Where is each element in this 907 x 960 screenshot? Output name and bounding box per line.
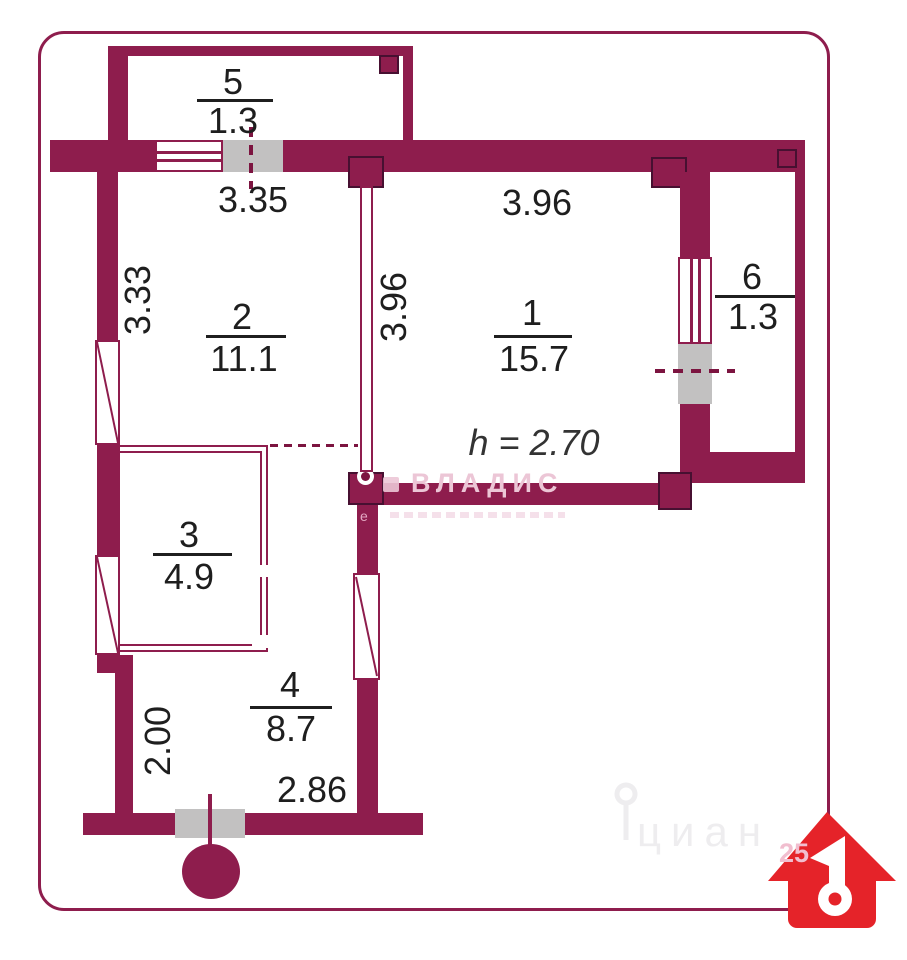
room2-number: 2 [232, 299, 252, 335]
cian-number-watermark: 25 [779, 838, 809, 869]
hall-wall-lower [357, 680, 378, 814]
balcony6-door [678, 344, 712, 404]
cian-watermark: циан [637, 808, 771, 856]
key-ring-hole [829, 893, 842, 906]
dim-partition: 3.96 [376, 272, 412, 342]
room-partition [360, 186, 373, 472]
window-line [157, 159, 221, 162]
hall-door [353, 573, 380, 680]
window-line [157, 151, 221, 154]
closet-opening-1 [252, 565, 270, 577]
room1-area: 15.7 [499, 341, 569, 377]
balcony6-window [678, 257, 712, 344]
left-wall-middle [97, 445, 118, 555]
dim-hall-width: 2.86 [277, 772, 347, 808]
house-key-logo-icon [766, 810, 900, 955]
room5-number: 5 [223, 64, 243, 100]
bottom-wall [83, 813, 423, 835]
room3-number: 3 [179, 517, 199, 553]
vladis-watermark: ВЛАДИС [411, 468, 563, 499]
left-window-2 [95, 555, 120, 655]
window-swing-line [97, 342, 118, 443]
vladis-watermark-small: е [360, 508, 368, 524]
balcony6-right-wall [795, 140, 805, 483]
entrance-door-knob [182, 844, 240, 899]
dim-left-wall: 3.33 [120, 265, 156, 335]
entrance-door-axis [208, 794, 212, 848]
room4-number: 4 [280, 667, 300, 703]
dim-room1-width: 3.96 [502, 185, 572, 221]
balcony5-right-wall [403, 46, 413, 142]
partition-pivot-dot [361, 472, 370, 481]
room1-right-wall-upper [680, 172, 710, 257]
room2-area: 11.1 [210, 341, 277, 377]
balcony5-column [379, 55, 399, 74]
balcony6-door-axis [655, 369, 735, 373]
room4-area: 8.7 [266, 711, 316, 747]
balcony5-door [223, 140, 283, 172]
window-swing-line [97, 557, 118, 653]
room1-bottom-column [658, 472, 692, 510]
left-wall-lower [115, 673, 133, 814]
closet-dashed-line [270, 444, 358, 447]
top-window [155, 140, 223, 172]
room3-area: 4.9 [164, 559, 214, 595]
balcony5-left-wall [108, 46, 128, 142]
closet-opening-2 [252, 635, 270, 648]
window-line [698, 259, 701, 342]
left-wall-junction [97, 655, 133, 673]
dim-balcony-door: 3.35 [218, 182, 288, 218]
left-window-1 [95, 340, 120, 445]
dim-hall-height: 2.00 [140, 706, 176, 776]
room1-number: 1 [522, 295, 542, 331]
window-line [690, 259, 693, 342]
cian-pin-icon [612, 780, 640, 846]
partition-top-column [348, 156, 384, 188]
room6-area: 1.3 [728, 299, 778, 335]
room5-area: 1.3 [208, 103, 258, 139]
vladis-logo-icon [383, 477, 399, 492]
ceiling-height-note: h = 2.70 [468, 422, 599, 464]
room6-number: 6 [742, 259, 762, 295]
balcony6-column [777, 149, 797, 168]
door-swing-line [355, 575, 378, 678]
vladis-tagline-faint [390, 512, 565, 518]
balcony5-top-wall [108, 46, 412, 56]
left-wall-upper [97, 172, 118, 340]
balcony6-bottom-wall [710, 452, 805, 483]
floor-plan: циан [0, 0, 907, 960]
